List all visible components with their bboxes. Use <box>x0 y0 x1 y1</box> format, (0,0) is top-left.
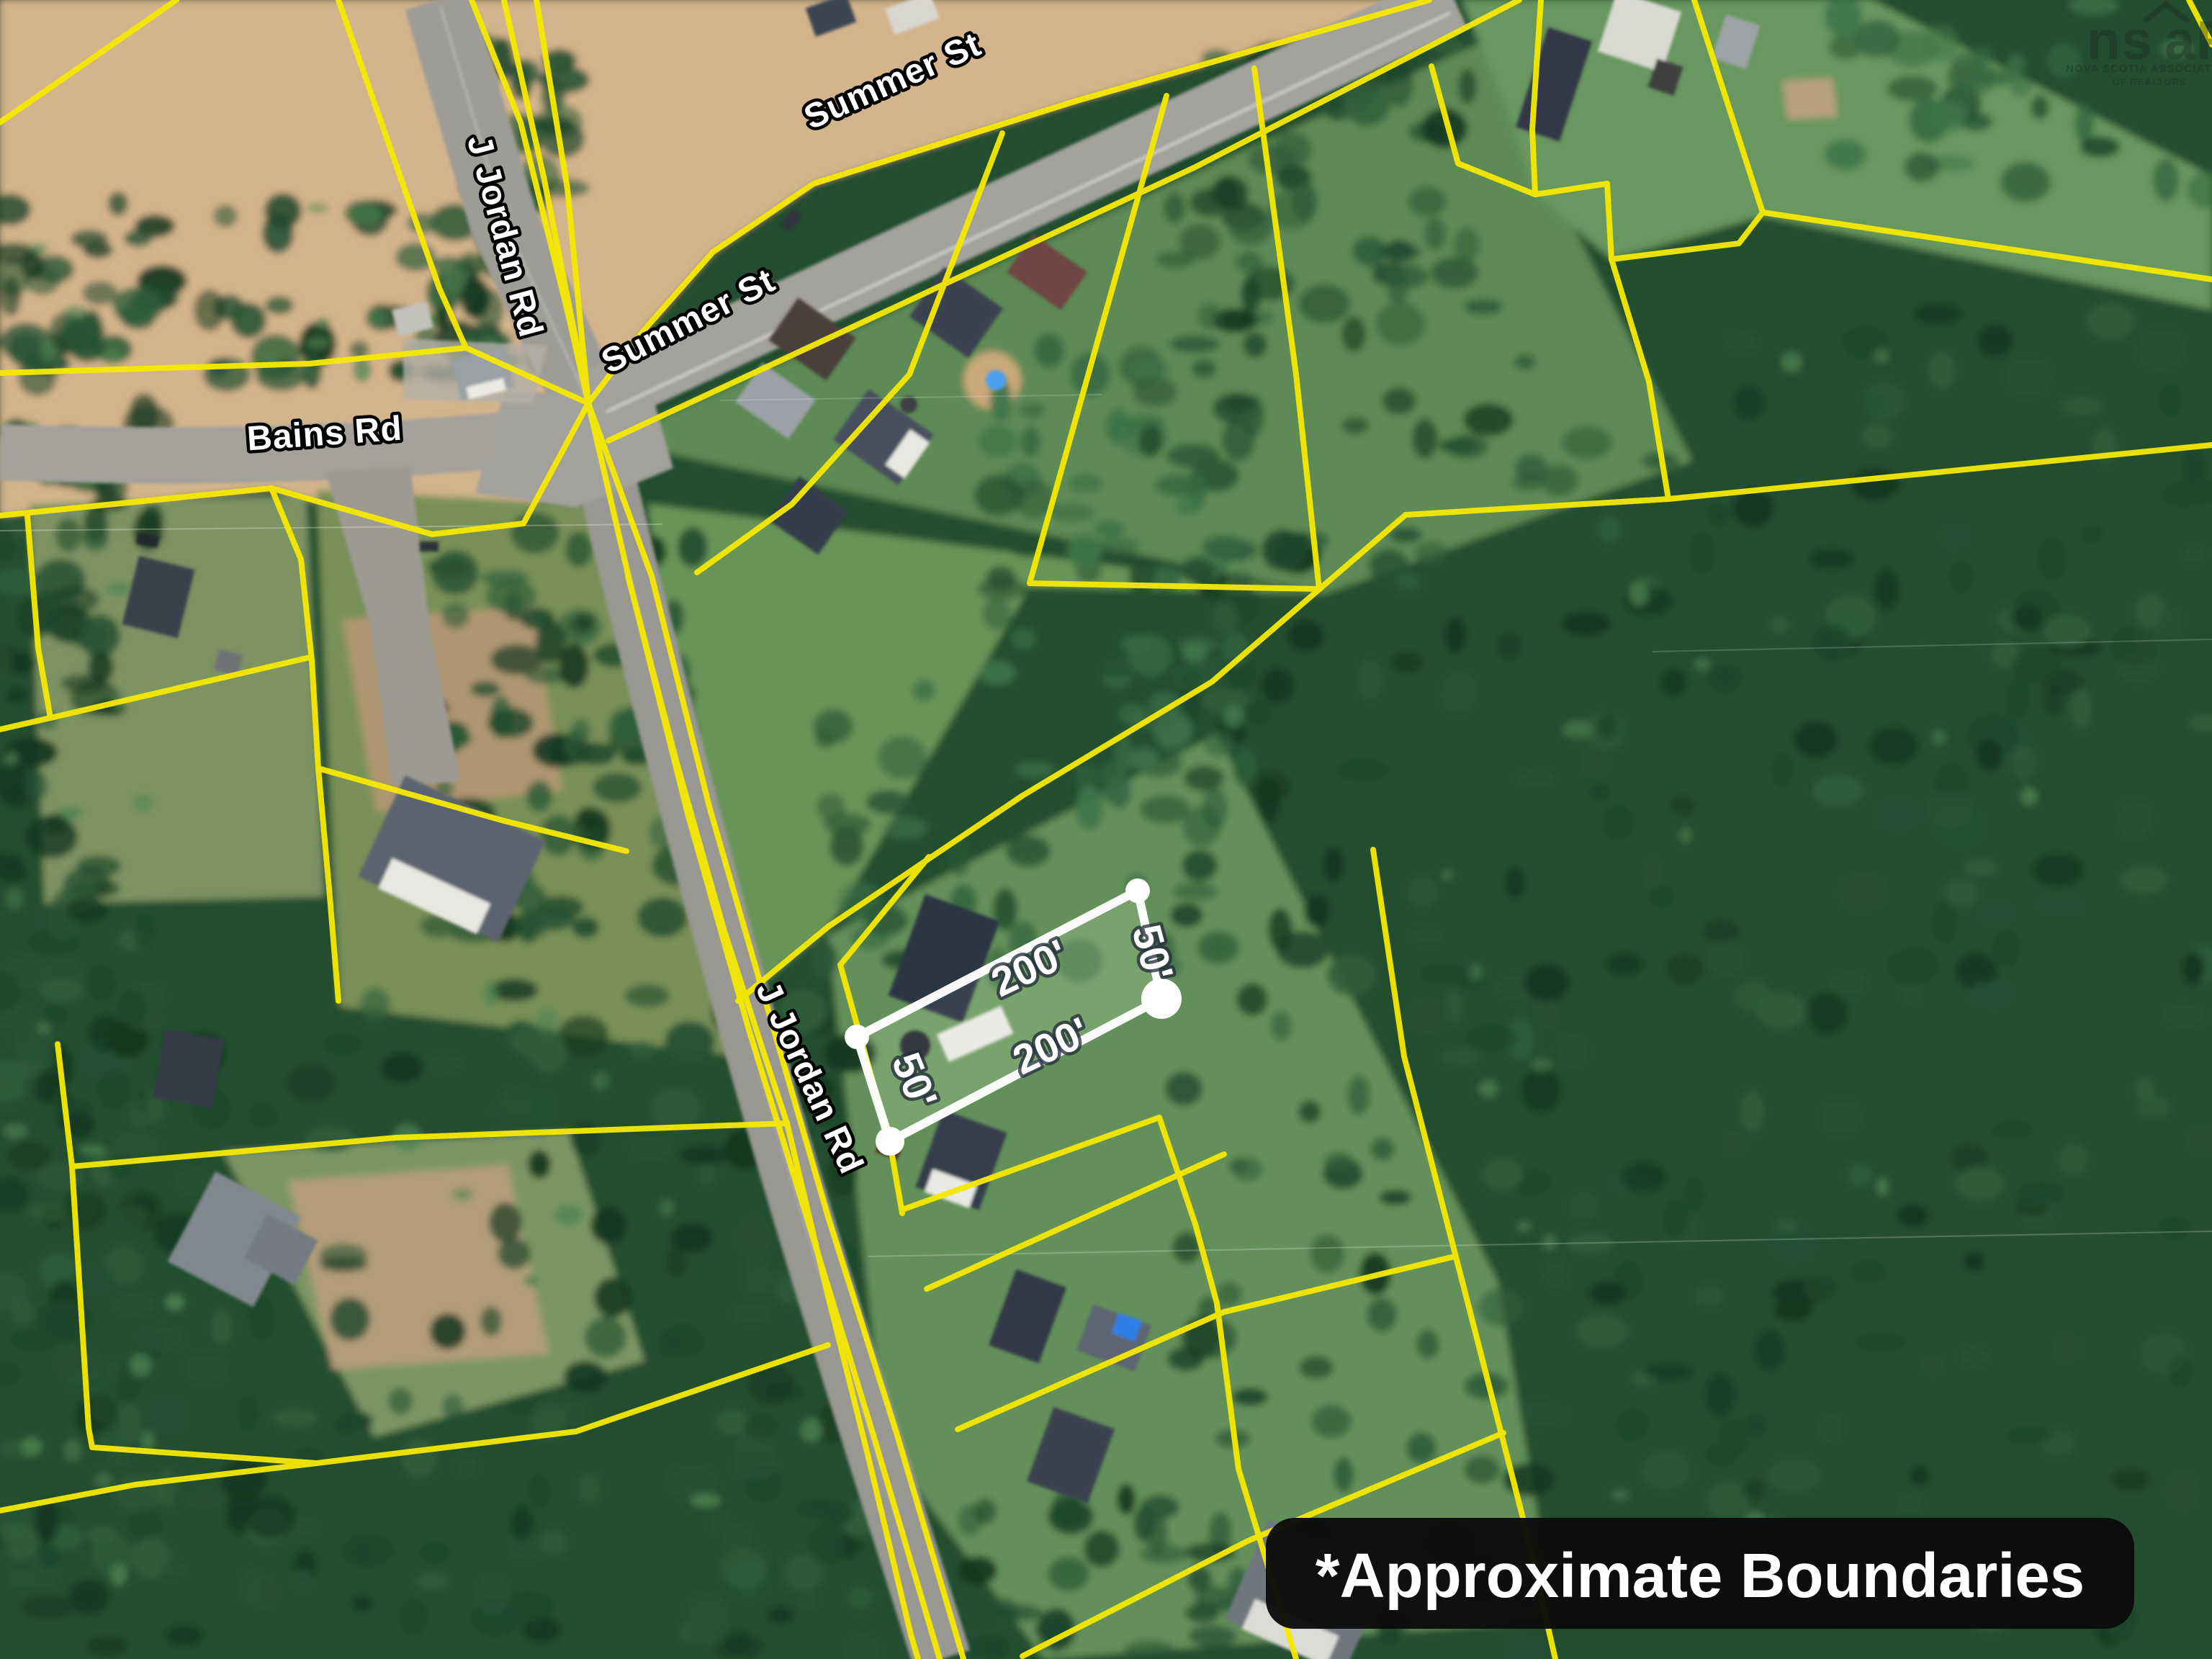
tree-canopy <box>2011 647 2062 683</box>
tree-canopy <box>64 1439 81 1462</box>
tree-canopy <box>1370 1138 1395 1161</box>
tree-canopy <box>1182 642 1207 662</box>
tree-canopy <box>111 1564 127 1586</box>
tree-canopy <box>490 979 538 1002</box>
tree-canopy <box>1463 403 1514 436</box>
tree-canopy <box>1876 1177 1888 1196</box>
tree-canopy <box>89 1015 125 1052</box>
tree-canopy <box>511 512 559 554</box>
tree-canopy <box>451 1188 473 1201</box>
tree-canopy <box>2135 328 2187 371</box>
tree-canopy <box>246 1496 296 1539</box>
tree-canopy <box>431 550 479 595</box>
tree-canopy <box>498 1238 531 1269</box>
tree-canopy <box>221 1459 267 1501</box>
tree-canopy <box>1323 1151 1354 1172</box>
building-roof <box>153 1029 224 1107</box>
building-roof <box>420 541 439 552</box>
tree-canopy <box>1718 1419 1748 1456</box>
tree-canopy <box>442 1394 464 1419</box>
tree-canopy <box>1404 997 1453 1033</box>
tree-canopy <box>523 1275 539 1287</box>
tree-canopy <box>1794 721 1838 757</box>
tree-canopy <box>1887 76 1938 102</box>
tree-canopy <box>564 1361 607 1393</box>
tree-canopy <box>2000 162 2051 202</box>
tree-canopy <box>1563 721 1593 738</box>
tree-canopy <box>1733 490 1773 527</box>
tree-canopy <box>351 204 382 223</box>
tree-canopy <box>1233 748 1257 787</box>
tree-canopy <box>1108 774 1131 809</box>
tree-canopy <box>2007 53 2026 75</box>
tree-canopy <box>1515 454 1548 482</box>
tree-canopy <box>1268 908 1292 951</box>
tree-canopy <box>559 644 589 688</box>
tree-canopy <box>1131 360 1170 380</box>
tree-canopy <box>44 1005 67 1025</box>
tree-canopy <box>1694 659 1710 670</box>
tree-canopy <box>1261 667 1294 703</box>
tree-canopy <box>1740 1090 1764 1132</box>
nsar-watermark: ns aR NOVA SCOTIA ASSOCIATION OF REALTOR… <box>2066 4 2212 87</box>
tree-canopy <box>1597 515 1622 544</box>
tree-canopy <box>211 1309 233 1345</box>
tree-canopy <box>37 1022 50 1034</box>
tree-canopy <box>1516 770 1556 787</box>
tree-canopy <box>1375 302 1426 346</box>
tree-canopy <box>2011 745 2037 781</box>
tree-canopy <box>1458 68 1477 104</box>
tree-canopy <box>1367 1298 1397 1332</box>
tree-canopy <box>1395 572 1421 591</box>
tree-canopy <box>1 276 21 317</box>
tree-canopy <box>2053 1335 2082 1361</box>
tree-canopy <box>184 1353 228 1385</box>
tree-canopy <box>1184 765 1224 791</box>
tree-canopy <box>1611 1490 1629 1500</box>
tree-canopy <box>1874 567 1899 611</box>
tree-canopy <box>1084 1530 1120 1568</box>
tree-canopy <box>82 281 118 305</box>
tree-canopy <box>1179 224 1220 260</box>
tree-canopy <box>35 1070 60 1103</box>
boundary-vertex-northeast <box>1125 878 1150 903</box>
tree-canopy <box>2111 1469 2150 1491</box>
tree-canopy <box>113 1292 156 1316</box>
tree-canopy <box>743 1252 769 1294</box>
tree-canopy <box>2135 1077 2155 1102</box>
tree-canopy <box>1993 930 2020 967</box>
tree-canopy <box>1940 524 1967 549</box>
tree-canopy <box>2038 536 2066 580</box>
tree-canopy <box>593 773 642 803</box>
tree-canopy <box>1769 616 1789 634</box>
tree-canopy <box>1503 1635 1543 1658</box>
tree-canopy <box>1170 903 1203 927</box>
tree-canopy <box>1483 1158 1523 1191</box>
tree-canopy <box>71 230 108 248</box>
tree-canopy <box>323 1033 362 1055</box>
tree-canopy <box>1382 387 1416 415</box>
tree-canopy <box>814 731 836 748</box>
tree-canopy <box>203 357 251 392</box>
tree-canopy <box>691 1494 721 1507</box>
tree-canopy <box>5 752 18 765</box>
tree-canopy <box>1598 712 1618 739</box>
tree-canopy <box>2162 1004 2206 1028</box>
tree-canopy <box>2032 853 2084 886</box>
tree-canopy <box>1950 562 1973 593</box>
tree-canopy <box>38 979 84 1002</box>
tree-canopy <box>1389 527 1422 543</box>
tree-canopy <box>40 338 56 361</box>
tree-canopy <box>1384 264 1429 289</box>
tree-canopy <box>330 1298 370 1341</box>
tree-canopy <box>86 1526 118 1545</box>
tree-canopy <box>2121 866 2168 894</box>
tree-canopy <box>1812 625 1851 661</box>
tree-canopy <box>1169 336 1220 353</box>
tree-canopy <box>161 1561 188 1577</box>
tree-canopy <box>660 1198 674 1217</box>
tree-canopy <box>487 708 534 738</box>
tree-canopy <box>594 1277 631 1318</box>
tree-canopy <box>1722 1131 1747 1154</box>
tree-canopy <box>1645 1363 1694 1380</box>
tree-canopy <box>1138 424 1163 457</box>
tree-canopy <box>141 1431 154 1451</box>
tree-canopy <box>213 204 238 228</box>
tree-canopy <box>117 1402 142 1444</box>
tree-canopy <box>1391 652 1423 673</box>
tree-canopy <box>1223 395 1258 412</box>
tree-canopy <box>671 1223 713 1252</box>
tree-canopy <box>166 1295 184 1310</box>
tree-canopy <box>306 203 329 213</box>
tree-canopy <box>1288 620 1324 652</box>
tree-canopy <box>1172 882 1218 901</box>
tree-canopy <box>1837 873 1889 912</box>
tree-canopy <box>1959 1346 1990 1367</box>
tree-canopy <box>30 243 48 255</box>
tree-canopy <box>1223 705 1244 728</box>
tree-canopy <box>79 1145 105 1155</box>
tree-canopy <box>1442 869 1453 881</box>
tree-canopy <box>1706 1481 1750 1521</box>
tree-canopy <box>1514 354 1536 370</box>
tree-canopy <box>629 1136 672 1161</box>
tree-canopy <box>2057 1143 2089 1177</box>
tree-canopy <box>732 1448 778 1480</box>
tree-canopy <box>511 1025 562 1058</box>
tree-canopy <box>1202 788 1228 829</box>
tree-canopy <box>2080 136 2120 158</box>
tree-canopy <box>1861 382 1906 421</box>
tree-canopy <box>1310 1234 1344 1273</box>
tree-canopy <box>801 1418 822 1442</box>
tree-canopy <box>1861 424 1893 449</box>
tree-canopy <box>958 1556 997 1585</box>
tree-canopy <box>2017 1182 2064 1206</box>
tree-canopy <box>1818 1413 1843 1443</box>
tree-canopy <box>401 1439 437 1478</box>
tree-canopy <box>2153 158 2179 202</box>
tree-canopy <box>809 1523 845 1565</box>
tree-canopy <box>1070 652 1089 686</box>
tree-canopy <box>1334 1457 1354 1493</box>
tree-canopy <box>3 1124 27 1138</box>
tree-canopy <box>419 1543 449 1563</box>
tree-canopy <box>146 1394 189 1433</box>
tree-canopy <box>1015 761 1055 778</box>
boundary-vertex-east <box>1141 979 1182 1019</box>
tree-canopy <box>866 790 909 814</box>
tree-canopy <box>625 984 670 1007</box>
satellite-map-image: 200' 200' 50' 50' J Jordan Rd Summer St … <box>0 0 2212 1659</box>
tree-canopy <box>1851 1260 1884 1283</box>
tree-canopy <box>1216 1282 1242 1306</box>
tree-canopy <box>1292 181 1318 222</box>
tree-canopy <box>1440 672 1478 714</box>
tree-canopy <box>118 989 147 1027</box>
tree-canopy <box>1555 1033 1588 1069</box>
tree-canopy <box>1744 1480 1764 1500</box>
tree-canopy <box>1129 558 1155 595</box>
tree-canopy <box>1211 601 1237 635</box>
tree-canopy <box>519 608 555 629</box>
tree-canopy <box>1106 408 1130 446</box>
tree-canopy <box>1228 207 1273 246</box>
tree-canopy <box>1772 752 1792 787</box>
tree-canopy <box>1201 535 1246 558</box>
tree-canopy <box>6 688 27 703</box>
tree-canopy <box>1048 1557 1089 1591</box>
tree-canopy <box>22 1596 75 1618</box>
tree-canopy <box>590 1207 626 1244</box>
tree-canopy <box>470 323 502 338</box>
tree-canopy <box>78 614 120 657</box>
watermark-caption-2: OF REALTORS <box>2113 76 2187 87</box>
tree-canopy <box>248 1102 277 1128</box>
tree-canopy <box>1439 438 1478 454</box>
tree-canopy <box>1774 1299 1812 1321</box>
boundary-vertex-northwest <box>845 1025 869 1049</box>
tree-canopy <box>2168 1354 2193 1388</box>
tree-canopy <box>1424 217 1446 251</box>
tree-canopy <box>1524 964 1569 1002</box>
tree-canopy <box>302 352 322 390</box>
tree-canopy <box>26 815 78 858</box>
tree-canopy <box>1139 1544 1187 1564</box>
tree-canopy <box>1900 986 1922 1004</box>
tree-canopy <box>24 770 48 801</box>
tree-canopy <box>1807 992 1848 1035</box>
tree-canopy <box>1920 1354 1945 1377</box>
tree-canopy <box>70 335 104 362</box>
tree-canopy <box>1323 848 1344 882</box>
tree-canopy <box>1774 1217 1799 1234</box>
tree-canopy <box>1243 332 1267 358</box>
tree-canopy <box>1956 1166 2005 1201</box>
tree-canopy <box>388 1388 413 1415</box>
tree-canopy <box>1464 299 1503 315</box>
tree-canopy <box>1709 666 1740 693</box>
tree-canopy <box>665 1021 715 1063</box>
tree-canopy <box>1978 324 2013 357</box>
tree-canopy <box>135 914 155 951</box>
tree-canopy <box>1311 1405 1352 1438</box>
tree-canopy <box>1925 791 1974 829</box>
tree-canopy <box>1768 1458 1821 1493</box>
tree-canopy <box>1478 1288 1524 1327</box>
tree-canopy <box>240 1568 261 1605</box>
tree-canopy <box>1222 418 1255 462</box>
tree-canopy <box>1011 627 1037 650</box>
tree-canopy <box>238 1394 258 1430</box>
tree-canopy <box>1517 1221 1532 1231</box>
tree-canopy <box>554 1204 584 1226</box>
tree-canopy <box>1022 668 1073 690</box>
tree-canopy <box>1724 331 1758 353</box>
tree-canopy <box>1506 867 1524 899</box>
tree-canopy <box>2006 679 2029 719</box>
tree-canopy <box>539 1529 568 1555</box>
tree-canopy <box>86 1637 128 1655</box>
tree-canopy <box>1622 1162 1666 1192</box>
tree-canopy <box>1049 503 1095 522</box>
approximate-boundaries-note: *Approximate Boundaries <box>1266 1518 2134 1629</box>
tree-canopy <box>1913 303 1962 325</box>
tree-canopy <box>1963 858 1999 877</box>
tree-canopy <box>526 905 575 931</box>
tree-canopy <box>69 1580 109 1614</box>
tree-canopy <box>811 941 837 979</box>
tree-canopy <box>272 1408 318 1427</box>
tree-canopy <box>1575 1314 1629 1349</box>
tree-canopy <box>1464 1455 1500 1484</box>
tree-canopy <box>1236 983 1268 1016</box>
tree-canopy <box>1006 835 1051 867</box>
backyard-pool <box>986 370 1006 390</box>
tree-canopy <box>1910 1466 1929 1486</box>
tree-canopy <box>1117 1483 1136 1515</box>
tree-canopy <box>536 1007 559 1032</box>
tree-canopy <box>1671 797 1694 814</box>
tree-canopy <box>1410 926 1444 945</box>
tree-canopy <box>1519 1400 1558 1427</box>
tree-canopy <box>6 888 23 909</box>
tree-canopy <box>1358 659 1382 701</box>
tree-canopy <box>1746 1413 1766 1437</box>
tree-canopy <box>22 1437 42 1456</box>
tree-canopy <box>1337 759 1389 781</box>
building <box>420 541 439 552</box>
tree-canopy <box>1416 1329 1439 1359</box>
tree-canopy <box>2005 1427 2054 1444</box>
tree-canopy <box>821 1502 854 1525</box>
tree-canopy <box>720 1548 769 1588</box>
tree-canopy <box>1905 152 1939 182</box>
tree-canopy <box>265 296 294 315</box>
watermark-caption-1: NOVA SCOTIA ASSOCIATION <box>2066 63 2212 75</box>
tree-canopy <box>1931 100 1967 132</box>
tree-canopy <box>1048 1498 1094 1534</box>
tree-canopy <box>1341 417 1369 434</box>
tree-canopy <box>1708 503 1728 526</box>
tree-canopy <box>2182 952 2204 985</box>
tree-canopy <box>456 1457 479 1477</box>
tree-canopy <box>489 1202 522 1243</box>
tree-canopy <box>352 1596 372 1611</box>
tree-canopy <box>351 1539 372 1565</box>
tree-canopy <box>1299 1356 1334 1379</box>
tree-canopy <box>480 1306 502 1336</box>
tree-canopy <box>1327 954 1376 996</box>
tree-canopy <box>113 1473 165 1511</box>
tree-canopy <box>982 597 1011 630</box>
tree-canopy <box>1888 948 1938 985</box>
tree-canopy <box>129 1509 162 1540</box>
tree-canopy <box>137 1326 184 1351</box>
tree-canopy <box>1642 1451 1691 1490</box>
tree-canopy <box>974 1498 997 1524</box>
tree-canopy <box>1972 45 1994 66</box>
tree-canopy <box>400 1599 427 1635</box>
tree-canopy <box>287 1064 335 1102</box>
tree-canopy <box>1347 1075 1370 1115</box>
tree-canopy <box>1589 1282 1627 1305</box>
tree-canopy <box>1270 1011 1292 1041</box>
tree-canopy <box>106 583 132 595</box>
tree-canopy <box>381 1053 423 1083</box>
tree-canopy <box>1825 140 1866 170</box>
tree-canopy <box>1804 1275 1837 1301</box>
tree-canopy <box>90 1398 116 1424</box>
tree-canopy <box>848 1586 873 1609</box>
tree-canopy <box>687 1592 729 1627</box>
tree-canopy <box>124 230 153 247</box>
tree-canopy <box>1298 284 1350 323</box>
tree-canopy <box>968 1635 1010 1659</box>
tree-canopy <box>1813 775 1862 804</box>
tree-canopy <box>1781 352 1802 372</box>
tree-canopy <box>678 527 708 567</box>
tree-canopy <box>637 897 688 938</box>
tree-canopy <box>360 988 390 1024</box>
tree-canopy <box>1414 541 1449 565</box>
tree-canopy <box>1197 302 1222 330</box>
tree-canopy <box>1897 1204 1929 1227</box>
tree-canopy <box>1617 1409 1648 1441</box>
tree-canopy <box>1531 1058 1552 1071</box>
tree-canopy <box>1140 795 1190 824</box>
tree-canopy <box>1589 783 1609 801</box>
map-canvas: 200' 200' 50' 50' J Jordan Rd Summer St … <box>0 0 2212 1659</box>
tree-canopy <box>292 1569 313 1589</box>
tree-canopy <box>1164 192 1185 224</box>
tree-canopy <box>1232 1388 1268 1406</box>
tree-canopy <box>1076 786 1103 830</box>
tree-canopy <box>798 1593 818 1611</box>
tree-canopy <box>1734 980 1773 1013</box>
tree-canopy <box>986 566 1016 590</box>
tree-canopy <box>1069 474 1102 493</box>
tree-canopy <box>1175 496 1202 515</box>
tree-canopy <box>88 965 115 1001</box>
tree-canopy <box>338 1411 374 1430</box>
tree-canopy <box>2041 17 2067 32</box>
